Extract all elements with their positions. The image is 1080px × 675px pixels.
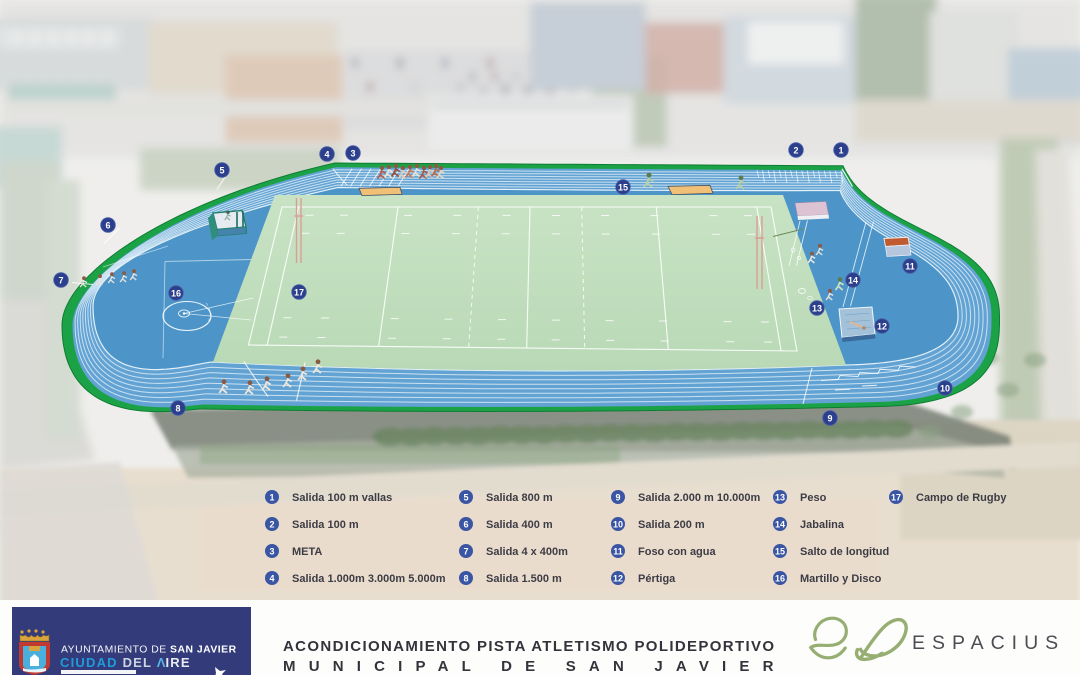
svg-text:8: 8: [175, 403, 180, 413]
svg-text:10: 10: [940, 383, 950, 393]
svg-text:16: 16: [775, 573, 785, 583]
svg-text:Salida 4 x 400m: Salida 4 x 400m: [486, 546, 568, 558]
svg-text:Salida 800 m: Salida 800 m: [486, 492, 553, 504]
svg-text:CIUDAD DEL ΛIRE: CIUDAD DEL ΛIRE: [60, 655, 191, 670]
svg-text:10: 10: [613, 519, 623, 529]
svg-text:Martillo y Disco: Martillo y Disco: [800, 573, 882, 585]
svg-text:Foso con agua: Foso con agua: [638, 546, 717, 558]
svg-text:Salida 2.000 m 10.000m: Salida 2.000 m 10.000m: [638, 492, 761, 504]
svg-text:14: 14: [848, 275, 858, 285]
svg-text:17: 17: [891, 492, 901, 502]
svg-text:1: 1: [838, 145, 843, 155]
svg-text:11: 11: [905, 261, 915, 271]
svg-text:Salida 200 m: Salida 200 m: [638, 519, 705, 531]
svg-text:13: 13: [775, 492, 785, 502]
svg-text:12: 12: [877, 321, 887, 331]
svg-text:6: 6: [463, 519, 468, 529]
svg-text:5: 5: [463, 492, 468, 502]
svg-text:Campo de Rugby: Campo de Rugby: [916, 492, 1007, 504]
svg-text:Pértiga: Pértiga: [638, 573, 676, 585]
svg-text:Salida 1.500 m: Salida 1.500 m: [486, 573, 562, 585]
svg-text:12: 12: [613, 573, 623, 583]
svg-text:8: 8: [463, 573, 468, 583]
svg-text:17: 17: [294, 287, 304, 297]
svg-text:9: 9: [615, 492, 620, 502]
svg-text:11: 11: [613, 546, 623, 556]
svg-text:3: 3: [269, 546, 274, 556]
svg-text:Peso: Peso: [800, 492, 827, 504]
svg-text:7: 7: [463, 546, 468, 556]
svg-text:Salto de longitud: Salto de longitud: [800, 546, 889, 558]
svg-text:Salida 100 m vallas: Salida 100 m vallas: [292, 492, 392, 504]
svg-text:Salida 1.000m 3.000m 5.000m: Salida 1.000m 3.000m 5.000m: [292, 573, 446, 585]
svg-text:2: 2: [793, 145, 798, 155]
svg-text:7: 7: [58, 275, 63, 285]
svg-text:META: META: [292, 546, 322, 558]
svg-text:6: 6: [105, 220, 110, 230]
svg-text:1: 1: [269, 492, 274, 502]
svg-text:13: 13: [812, 303, 822, 313]
svg-text:Salida 100 m: Salida 100 m: [292, 519, 359, 531]
svg-text:AYUNTAMIENTO DE SAN JAVIER: AYUNTAMIENTO DE SAN JAVIER: [61, 645, 237, 656]
svg-text:ACONDICIONAMIENTO PISTA ATLET: ACONDICIONAMIENTO PISTA ATLETISMO POLIDE…: [283, 638, 775, 655]
svg-text:MUNICIPAL DE SAN JAVIER: MUNICIPAL DE SAN JAVIER: [283, 658, 787, 675]
svg-text:15: 15: [618, 182, 628, 192]
svg-text:16: 16: [171, 288, 181, 298]
svg-text:Jabalina: Jabalina: [800, 519, 845, 531]
svg-text:Salida 400 m: Salida 400 m: [486, 519, 553, 531]
svg-text:4: 4: [269, 573, 274, 583]
svg-text:ESPACIUS: ESPACIUS: [912, 632, 1065, 654]
svg-text:3: 3: [350, 148, 355, 158]
svg-text:9: 9: [827, 413, 832, 423]
svg-text:2: 2: [269, 519, 274, 529]
svg-text:15: 15: [775, 546, 785, 556]
svg-text:5: 5: [219, 165, 224, 175]
svg-text:4: 4: [324, 149, 329, 159]
svg-text:14: 14: [775, 519, 785, 529]
